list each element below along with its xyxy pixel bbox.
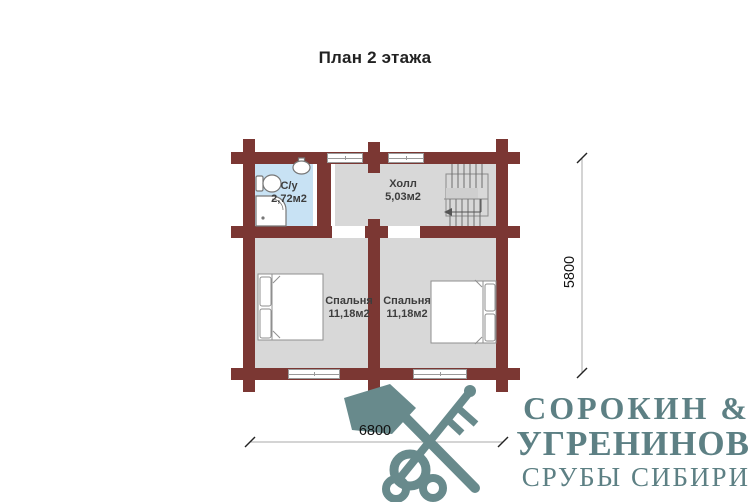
bedroom-left-label: Спальня 11,18м2: [317, 295, 381, 321]
bedroom-left-area: 11,18м2: [317, 308, 381, 321]
company-logo: СОРОКИН & УГРЕНИНОВ СРУБЫ СИБИРИ: [498, 390, 750, 493]
staircase-icon: [444, 164, 488, 226]
bathroom-label: С/у 2,72м2: [257, 180, 321, 206]
hall-name: Холл: [371, 178, 435, 191]
dimension-width-value: 6800: [353, 423, 397, 439]
bedroom-right-label: Спальня 11,18м2: [375, 295, 439, 321]
dimension-height-value: 5800: [562, 251, 578, 293]
sink-icon: [293, 158, 310, 174]
bedroom-right-name: Спальня: [375, 295, 439, 308]
logo-name-line1: СОРОКИН &: [498, 390, 750, 426]
bathroom-area: 2,72м2: [257, 193, 321, 206]
logo-name-line2: УГРЕНИНОВ: [498, 426, 750, 462]
floor-plan-page: План 2 этажа: [0, 0, 753, 502]
dimension-line-vertical: [577, 153, 587, 378]
logo-tagline: СРУБЫ СИБИРИ: [498, 462, 750, 493]
hall-label: Холл 5,03м2: [371, 178, 435, 204]
bed-left-icon: [258, 274, 323, 340]
stair-direction-arrow: [444, 208, 452, 216]
hall-area: 5,03м2: [371, 191, 435, 204]
bedroom-right-area: 11,18м2: [375, 308, 439, 321]
bathroom-name: С/у: [257, 180, 321, 193]
bed-right-icon: [431, 280, 496, 344]
bedroom-left-name: Спальня: [317, 295, 381, 308]
